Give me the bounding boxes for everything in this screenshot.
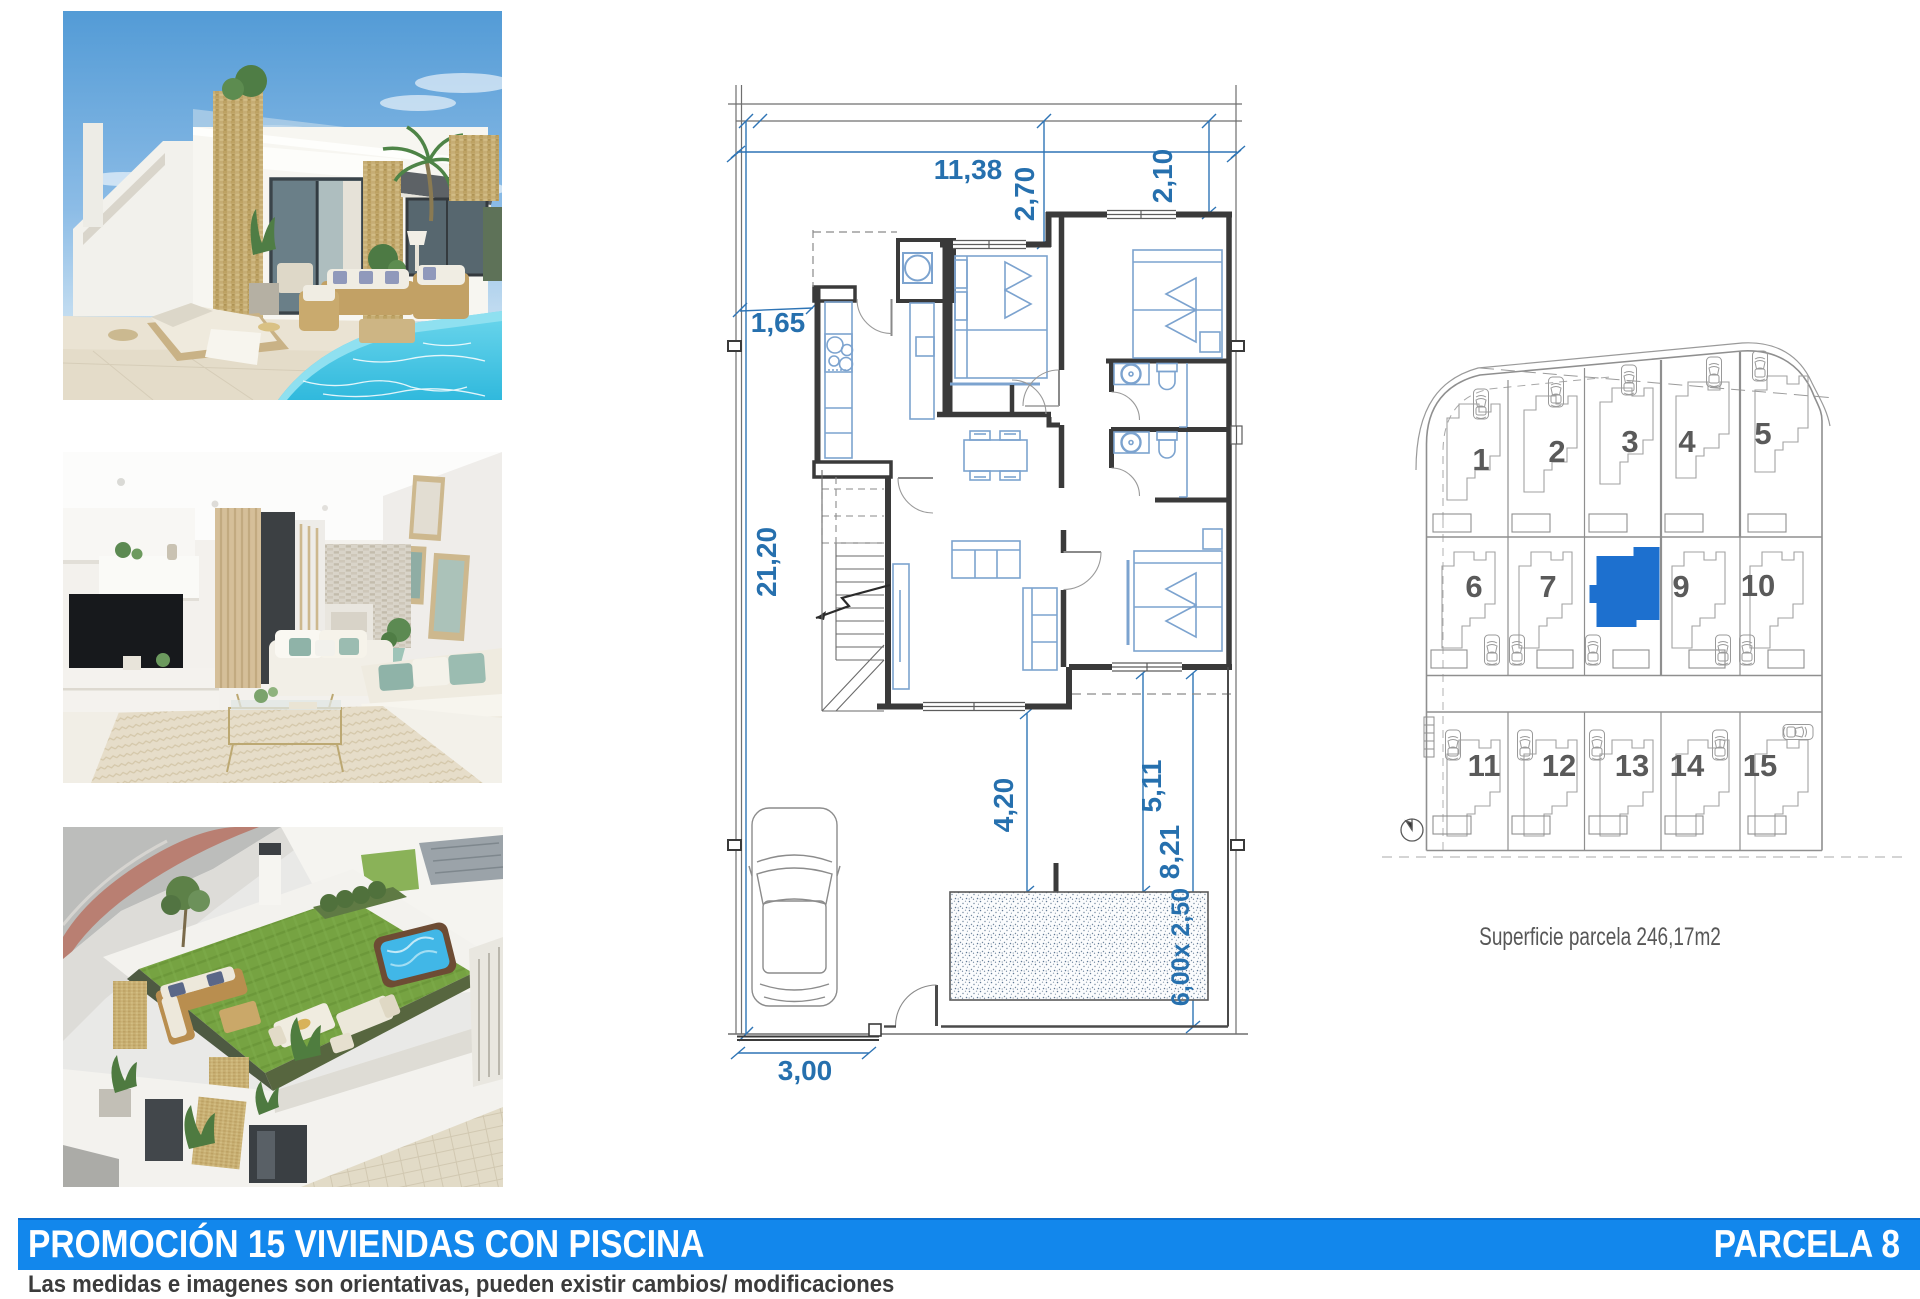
svg-text:3: 3 <box>1621 424 1638 459</box>
svg-text:6,00x 2,50: 6,00x 2,50 <box>1167 888 1195 1006</box>
svg-text:11,38: 11,38 <box>934 154 1003 185</box>
svg-text:2: 2 <box>1548 434 1565 469</box>
svg-text:11: 11 <box>1468 748 1501 783</box>
svg-text:10: 10 <box>1741 568 1775 603</box>
svg-text:14: 14 <box>1670 748 1705 783</box>
svg-text:4,20: 4,20 <box>988 778 1019 833</box>
svg-text:13: 13 <box>1615 748 1649 783</box>
svg-text:7: 7 <box>1539 569 1556 604</box>
svg-text:12: 12 <box>1542 748 1576 783</box>
svg-text:8,21: 8,21 <box>1154 825 1185 880</box>
svg-text:2,70: 2,70 <box>1009 167 1040 222</box>
svg-text:2,10: 2,10 <box>1147 149 1178 204</box>
svg-text:5,11: 5,11 <box>1136 760 1167 813</box>
svg-text:Superficie parcela 246,17m2: Superficie parcela 246,17m2 <box>1479 922 1721 950</box>
svg-text:3,00: 3,00 <box>778 1055 833 1086</box>
svg-text:6: 6 <box>1465 569 1482 604</box>
svg-text:9: 9 <box>1672 569 1689 604</box>
svg-text:1: 1 <box>1472 442 1489 477</box>
svg-text:5: 5 <box>1754 416 1771 451</box>
svg-text:15: 15 <box>1743 748 1777 783</box>
svg-text:21,20: 21,20 <box>751 527 782 597</box>
svg-text:4: 4 <box>1678 424 1696 459</box>
svg-text:1,65: 1,65 <box>751 307 806 338</box>
